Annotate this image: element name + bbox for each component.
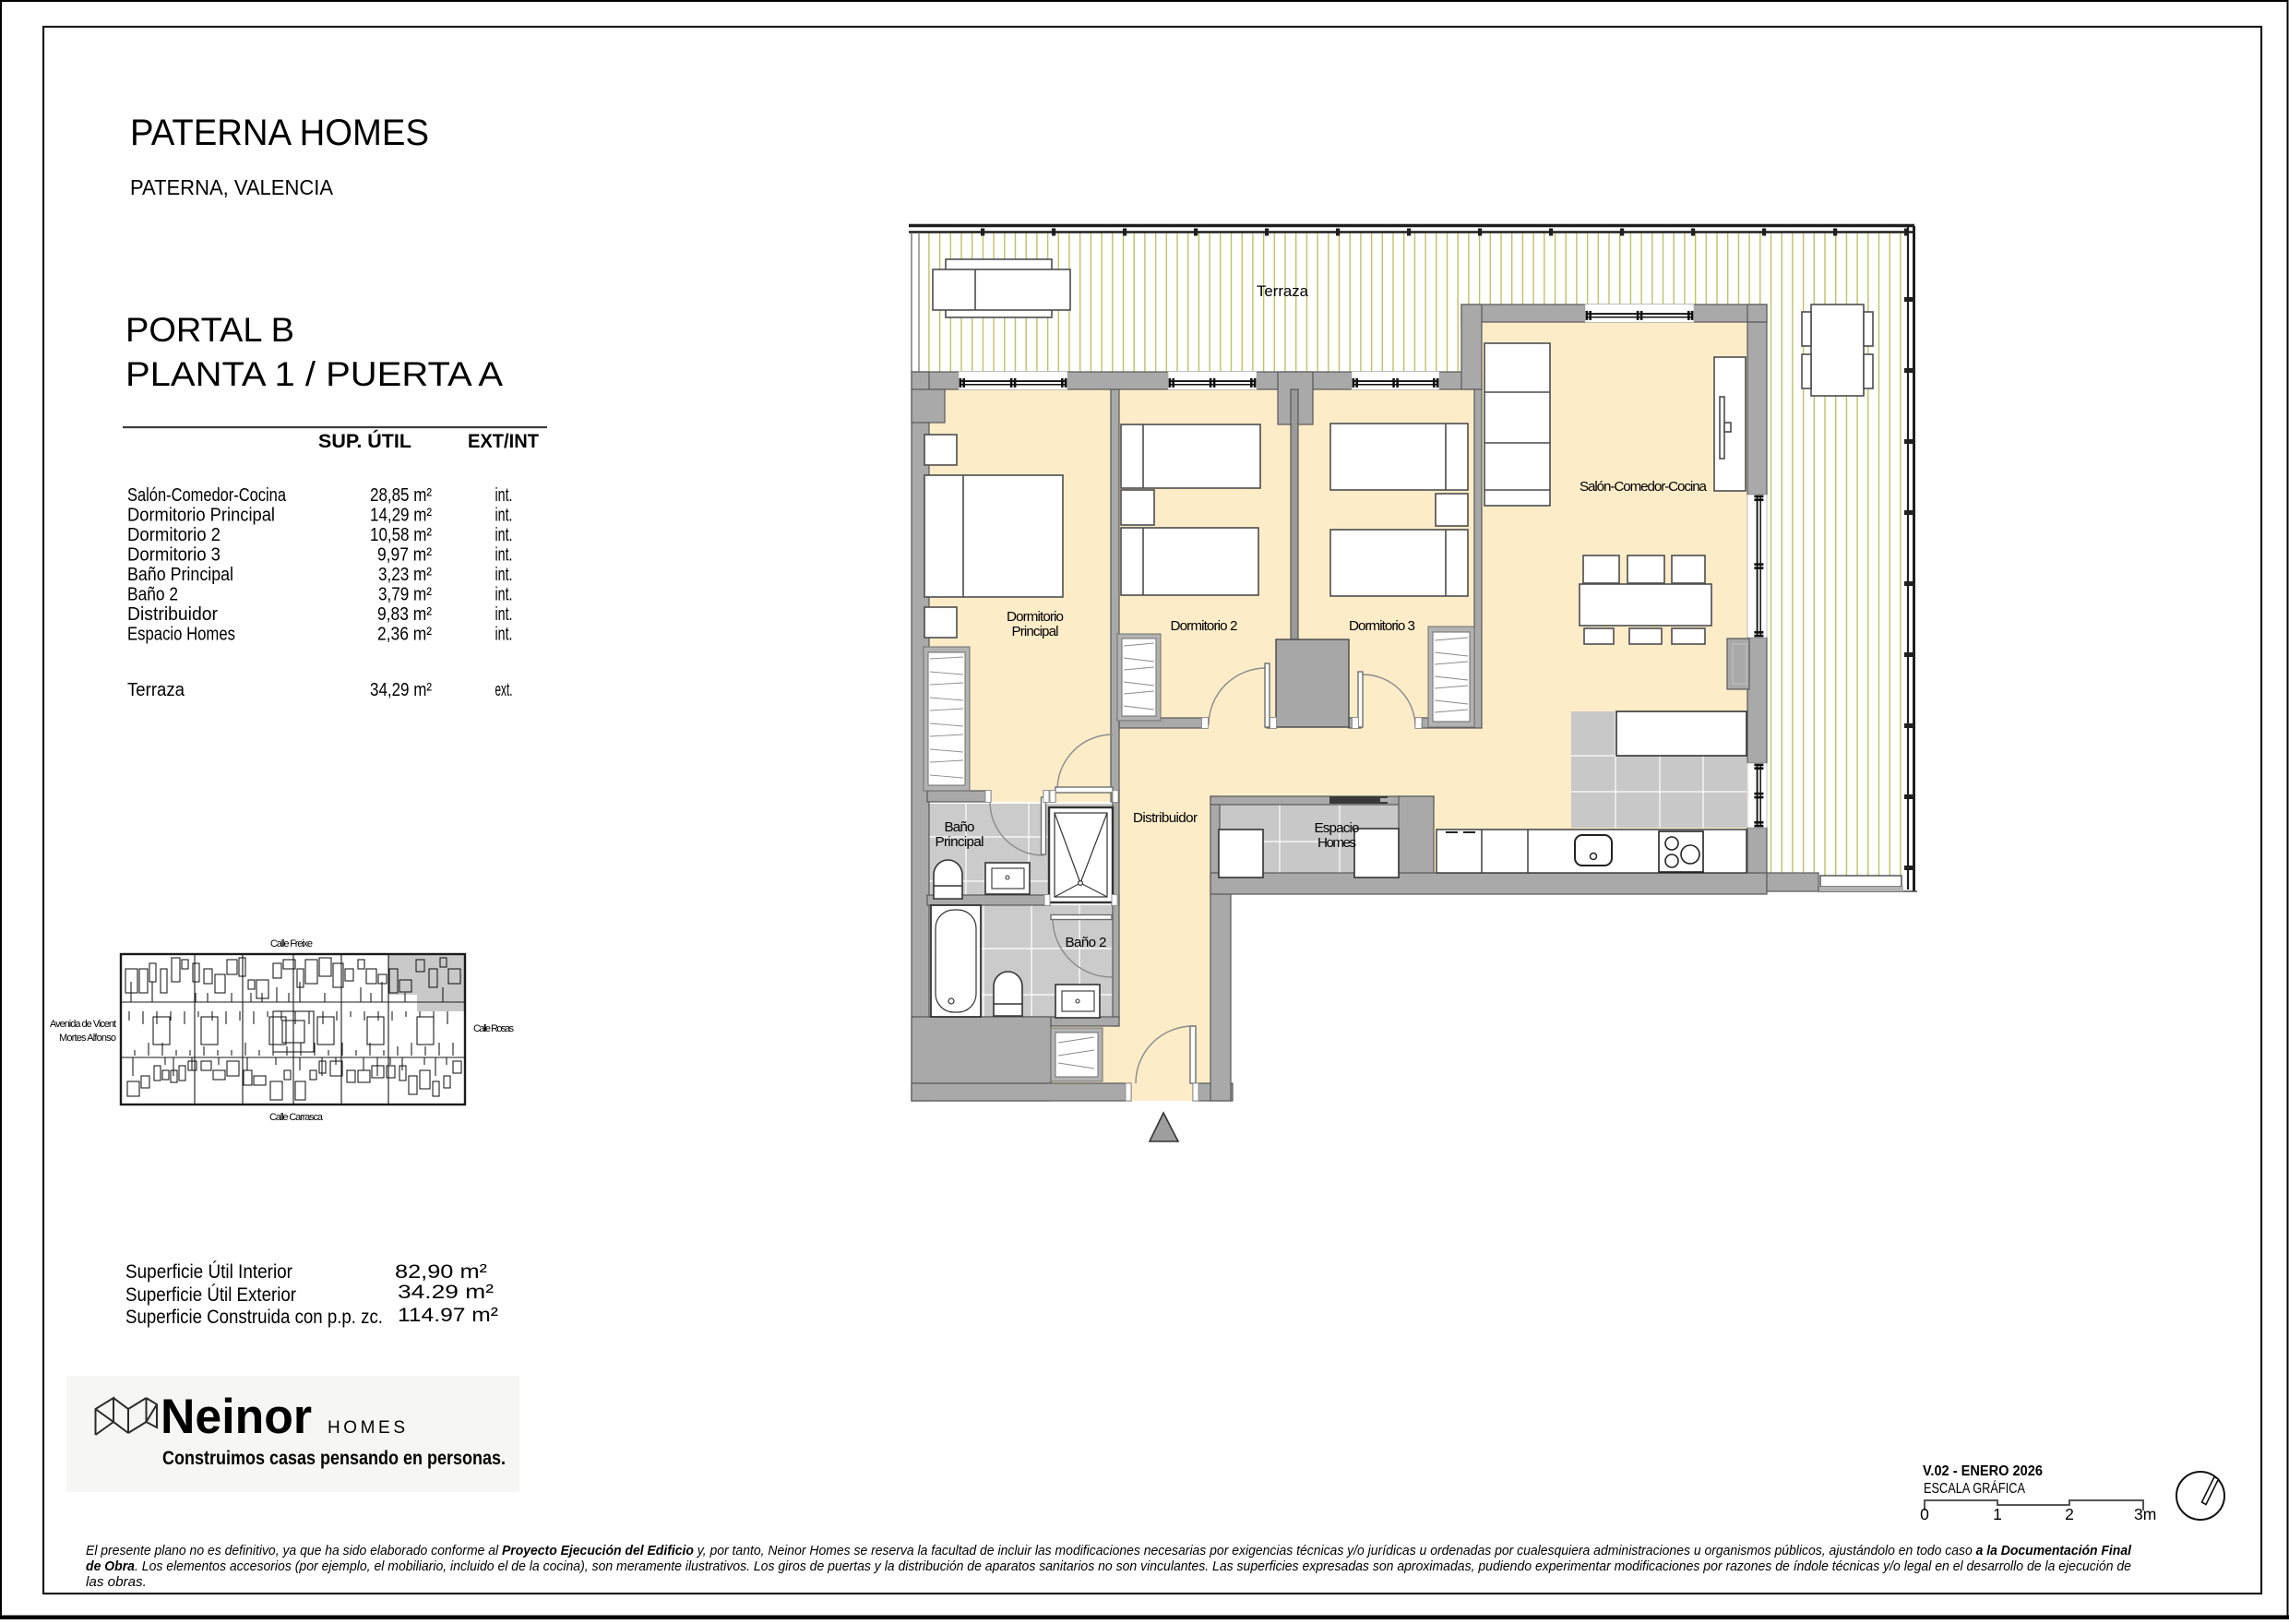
svg-text:int.: int. <box>495 584 513 605</box>
svg-text:Dormitorio 2: Dormitorio 2 <box>1171 618 1238 634</box>
svg-text:V.02 - ENERO 2026: V.02 - ENERO 2026 <box>1923 1463 2043 1479</box>
svg-text:Neinor: Neinor <box>161 1390 312 1444</box>
svg-text:34.29 m²: 34.29 m² <box>398 1281 494 1303</box>
svg-text:int.: int. <box>495 505 513 526</box>
svg-text:Distribuidor: Distribuidor <box>1133 810 1198 826</box>
svg-text:HOMES: HOMES <box>328 1418 405 1438</box>
svg-text:ext.: ext. <box>495 679 513 700</box>
svg-text:Principal: Principal <box>1012 624 1059 639</box>
svg-text:2: 2 <box>2065 1505 2074 1523</box>
svg-text:2,36 m²: 2,36 m² <box>377 624 432 645</box>
svg-text:10,58 m²: 10,58 m² <box>370 524 432 545</box>
svg-text:int.: int. <box>495 524 513 545</box>
svg-text:Calle Carrasca: Calle Carrasca <box>269 1112 324 1123</box>
svg-text:3,79 m²: 3,79 m² <box>378 584 432 605</box>
svg-text:las obras.: las obras. <box>86 1574 147 1590</box>
svg-text:9,83 m²: 9,83 m² <box>377 603 432 625</box>
svg-text:Homes: Homes <box>1317 835 1356 851</box>
svg-text:1: 1 <box>1993 1505 2002 1523</box>
svg-text:int.: int. <box>495 603 513 625</box>
svg-text:Principal: Principal <box>936 834 984 850</box>
svg-text:Salón-Comedor-Cocina: Salón-Comedor-Cocina <box>127 484 286 506</box>
svg-text:int.: int. <box>495 484 513 506</box>
svg-text:Construimos casas pensando en: Construimos casas pensando en personas. <box>162 1447 506 1469</box>
svg-text:Espacio: Espacio <box>1315 820 1360 836</box>
svg-text:9,97 m²: 9,97 m² <box>377 544 432 566</box>
svg-text:Superficie Útil Interior: Superficie Útil Interior <box>125 1260 292 1283</box>
svg-text:Dormitorio 3: Dormitorio 3 <box>127 544 221 566</box>
svg-text:EXT/INT: EXT/INT <box>468 431 539 452</box>
svg-text:Distribuidor: Distribuidor <box>127 603 218 625</box>
svg-text:Mortes Alfonso: Mortes Alfonso <box>59 1033 116 1044</box>
svg-text:82,90 m²: 82,90 m² <box>395 1260 487 1283</box>
svg-text:Terraza: Terraza <box>127 679 185 700</box>
svg-text:PORTAL B: PORTAL B <box>125 311 294 349</box>
svg-text:ESCALA GRÁFICA: ESCALA GRÁFICA <box>1924 1479 2025 1497</box>
svg-text:Terraza: Terraza <box>1257 282 1309 300</box>
svg-text:SUP. ÚTIL: SUP. ÚTIL <box>318 430 411 452</box>
svg-text:28,85 m²: 28,85 m² <box>370 484 432 506</box>
svg-text:3,23 m²: 3,23 m² <box>378 564 432 585</box>
svg-text:int.: int. <box>495 564 513 585</box>
svg-text:0: 0 <box>1920 1505 1929 1523</box>
svg-text:int.: int. <box>495 544 513 566</box>
svg-text:Superficie Útil Exterior: Superficie Útil Exterior <box>125 1283 296 1306</box>
svg-text:El presente plano no es defini: El presente plano no es definitivo, ya q… <box>86 1543 2132 1558</box>
svg-text:Baño Principal: Baño Principal <box>127 564 233 585</box>
svg-text:Superficie Construida con p.p.: Superficie Construida con p.p. zc. <box>125 1306 383 1328</box>
svg-text:de Obra. Los elementos accesor: de Obra. Los elementos accesorios (por e… <box>86 1558 2131 1574</box>
svg-text:Baño 2: Baño 2 <box>127 584 178 605</box>
svg-text:Dormitorio: Dormitorio <box>1007 609 1064 625</box>
svg-text:34,29 m²: 34,29 m² <box>370 679 432 700</box>
svg-text:Calle Freixe: Calle Freixe <box>270 938 313 949</box>
svg-text:Dormitorio Principal: Dormitorio Principal <box>127 505 275 526</box>
svg-text:int.: int. <box>495 624 513 645</box>
svg-text:PATERNA, VALENCIA: PATERNA, VALENCIA <box>130 175 333 199</box>
svg-text:Dormitorio 2: Dormitorio 2 <box>127 524 221 545</box>
svg-text:Salón-Comedor-Cocina: Salón-Comedor-Cocina <box>1580 479 1708 495</box>
svg-text:Avenida de Vicent: Avenida de Vicent <box>50 1019 116 1030</box>
svg-text:PATERNA HOMES: PATERNA HOMES <box>130 113 429 153</box>
svg-text:3m: 3m <box>2134 1505 2156 1523</box>
svg-text:Dormitorio 3: Dormitorio 3 <box>1349 618 1415 634</box>
svg-text:Espacio Homes: Espacio Homes <box>127 624 235 645</box>
svg-text:14,29 m²: 14,29 m² <box>370 505 432 526</box>
svg-text:Calle Rosas: Calle Rosas <box>473 1023 515 1034</box>
svg-text:Baño: Baño <box>945 819 975 835</box>
svg-text:PLANTA 1 / PUERTA A: PLANTA 1 / PUERTA A <box>125 355 503 393</box>
svg-text:114.97 m²: 114.97 m² <box>398 1304 498 1326</box>
svg-text:Baño 2: Baño 2 <box>1066 935 1107 950</box>
